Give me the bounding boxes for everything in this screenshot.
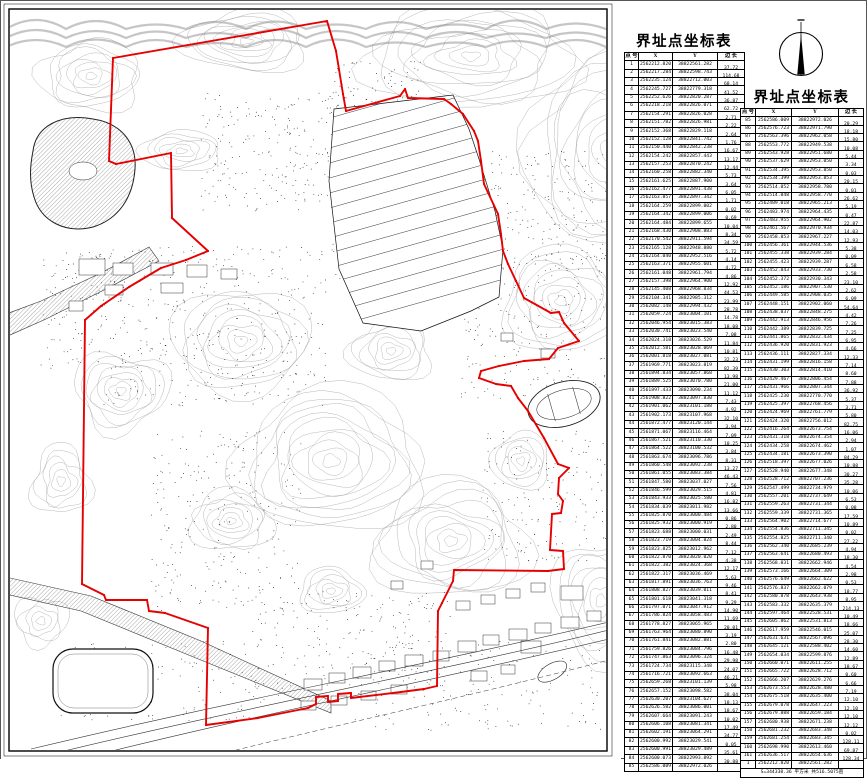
table1-container: 点 号XY边 长12562212.82038822561.28237.72225… — [624, 52, 745, 772]
topographic-map-canvas — [1, 1, 621, 760]
table-row: 12562212.82038822561.28237.72 — [625, 61, 745, 69]
table2-title: 界址点坐标表 — [740, 86, 863, 107]
table2-container: 点 号XY边 长852562586.00938822972.02620.2986… — [740, 108, 864, 778]
boundary-point-table-1: 点 号XY边 长12562212.82038822561.28237.72225… — [624, 52, 745, 772]
header-row: 点 号XY边 长 — [625, 53, 745, 61]
column-header: Y — [792, 109, 839, 117]
table1-title: 界址点坐标表 — [624, 30, 744, 51]
column-header: 边 长 — [839, 109, 864, 117]
column-header: Y — [673, 53, 718, 61]
boundary-point-table-2: 点 号XY边 长852562586.00938822972.02620.2986… — [740, 108, 864, 778]
column-header: 点 号 — [741, 109, 756, 117]
column-header: 边 长 — [718, 53, 745, 61]
area-summary-row: S=344338.36 平方米 共516.5075亩 — [741, 769, 864, 777]
topographic-map — [1, 1, 621, 760]
column-header: X — [639, 53, 673, 61]
north-compass-icon — [765, 9, 837, 89]
column-header: X — [756, 109, 792, 117]
header-row: 点 号XY边 长 — [741, 109, 864, 117]
table-row: 852562586.00938822972.02620.29 — [741, 117, 864, 125]
compass-needle — [797, 34, 804, 75]
column-header: 点 号 — [625, 53, 639, 61]
survey-map-sheet: { "map": { "boundary_color": "#e60000", … — [0, 0, 867, 759]
